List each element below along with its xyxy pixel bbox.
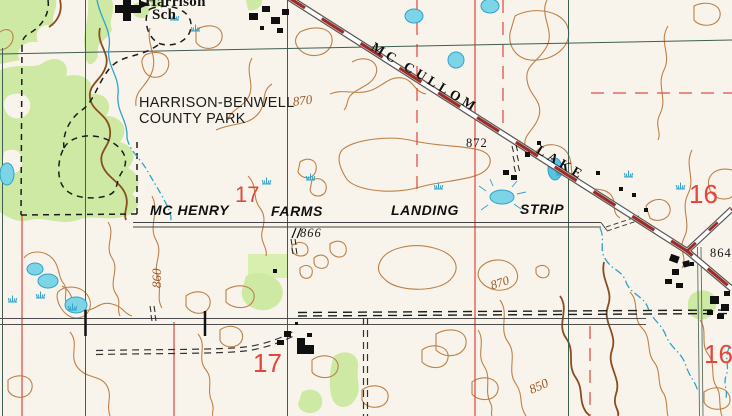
contour-label-870-upper: 870 xyxy=(292,93,313,108)
unimproved-roads xyxy=(96,318,368,416)
pond xyxy=(27,263,43,275)
airstrip-label-landing: LANDING xyxy=(391,203,459,217)
spot-elevation-864: 864 xyxy=(710,247,732,260)
contour-label-860: 860 xyxy=(150,269,163,289)
landing-strip xyxy=(133,216,640,231)
marsh-icon xyxy=(8,296,17,303)
airstrip-label-strip: STRIP xyxy=(520,202,564,216)
fence-ticks xyxy=(150,145,520,321)
park-label-line2: COUNTY PARK xyxy=(139,112,246,127)
airstrip-label-farms: FARMS xyxy=(271,204,323,218)
airstrip-label-mc-henry: MC HENRY xyxy=(150,203,229,217)
pond xyxy=(448,52,464,68)
section-number-16-lower: 16 xyxy=(704,341,732,367)
section-number-17-upper: 17 xyxy=(235,184,259,206)
section-number-17-lower: 17 xyxy=(253,350,282,376)
bottom-road xyxy=(0,319,646,325)
park-label-line1: HARRISON-BENWELL xyxy=(139,96,294,111)
map-canvas xyxy=(0,0,732,416)
farm-lane xyxy=(698,247,704,416)
orchard-building-dot xyxy=(273,269,277,273)
topo-map: Harrison Sch HARRISON-BENWELL COUNTY PAR… xyxy=(0,0,732,416)
section-number-16-upper: 16 xyxy=(689,181,718,207)
pond xyxy=(405,9,423,23)
pond xyxy=(38,274,58,288)
section-corner-ticks xyxy=(86,310,206,336)
school-label-line2: Sch xyxy=(152,8,176,23)
pond xyxy=(481,0,499,13)
marsh-icon xyxy=(262,178,271,185)
spring-pond-icon xyxy=(479,179,526,210)
spot-elevation-866: 866 xyxy=(300,227,322,240)
spot-elevation-872: 872 xyxy=(466,137,488,150)
marsh-icon xyxy=(676,183,685,190)
marsh-icon xyxy=(624,171,633,178)
pond xyxy=(0,163,14,185)
marsh-icon xyxy=(36,292,45,299)
marsh-icon xyxy=(191,25,200,32)
pond xyxy=(65,297,87,313)
streams xyxy=(97,0,729,398)
unimproved-road-section-line xyxy=(298,310,732,316)
